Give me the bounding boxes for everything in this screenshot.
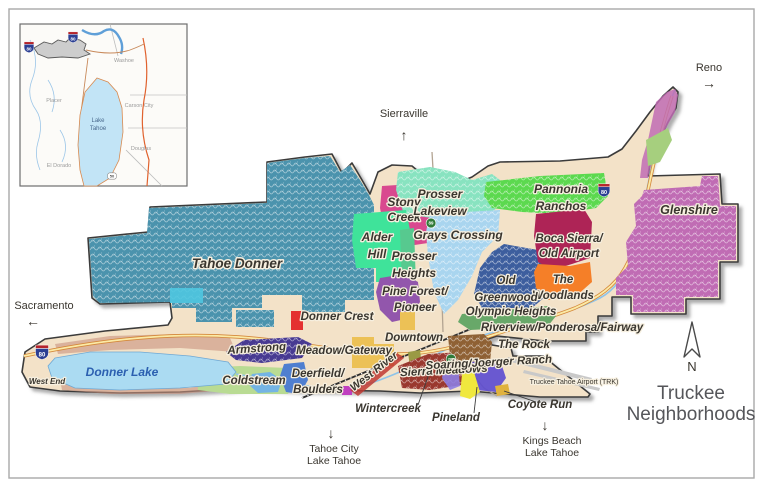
tahoe-donner-meadow: [170, 288, 203, 303]
meadow-gateway-region-c[interactable]: [400, 312, 415, 330]
svg-text:80: 80: [70, 36, 76, 41]
state-route-89-shield: 89: [426, 218, 436, 228]
pineland-label: Pineland: [432, 412, 481, 424]
svg-text:80: 80: [39, 353, 46, 359]
coldstream-label: Coldstream: [222, 375, 285, 387]
downtown-label: Downtown: [385, 332, 443, 344]
coyote-run-label: Coyote Run: [508, 399, 573, 411]
west-end-label: West End: [29, 377, 66, 386]
grays-crossing-label: Grays Crossing: [413, 228, 503, 242]
glenshire-label: Glenshire: [660, 203, 718, 217]
kings-beach-label: Kings BeachLake Tahoe: [523, 435, 582, 459]
map-canvas[interactable]: 808080808926750Tahoe DonnerStonyCreekPro…: [0, 0, 768, 497]
sierraville-arrow: ↑: [401, 127, 408, 143]
meadow-gateway-label: Meadow/Gateway: [296, 345, 392, 357]
wintercreek-label: Wintercreek: [355, 403, 421, 415]
tahoe-city-arrow: ↓: [328, 425, 335, 441]
the-rock-label: The Rock: [498, 339, 550, 351]
airport-label: Truckee Tahoe Airport (TRK): [530, 379, 619, 386]
riverview-ponderosa-fairway-label: Riverview/Ponderosa/Fairway: [481, 322, 644, 334]
reno-label: Reno: [696, 62, 722, 74]
interstate-80-shield: 80: [36, 345, 49, 360]
inset-placer-label: Placer: [46, 98, 62, 104]
north-arrow: [684, 322, 700, 357]
sacramento-label: Sacramento: [14, 300, 73, 312]
donner-crest-label: Donner Crest: [301, 311, 375, 323]
interstate-80-shield: 80: [598, 184, 610, 197]
sierraville-label: Sierraville: [380, 108, 428, 120]
tahoe-donner-block[interactable]: [236, 310, 274, 327]
svg-text:80: 80: [26, 46, 32, 51]
map-title: TruckeeNeighborhoods: [627, 383, 756, 425]
tahoe-donner-label: Tahoe Donner: [192, 256, 283, 271]
olympic-heights-label: Olympic Heights: [466, 306, 557, 318]
interstate-80-shield: 80: [24, 42, 34, 53]
svg-text:50: 50: [110, 174, 115, 179]
svg-text:89: 89: [429, 221, 434, 226]
compass-n-label: N: [687, 359, 696, 374]
inset-douglas-label: Douglas: [131, 146, 151, 152]
inset-el-dorado-label: El Dorado: [47, 163, 71, 169]
kings-beach-arrow: ↓: [542, 417, 549, 433]
inset-washoe-label: Washoe: [114, 58, 134, 64]
coyote-run-region[interactable]: [495, 384, 510, 396]
interstate-80-shield: 80: [68, 32, 78, 43]
truckee-neighborhoods-map: Truckee Neighborhoods 808080808926750Tah…: [0, 0, 768, 497]
tahoe-city-label: Tahoe CityLake Tahoe: [307, 443, 361, 467]
svg-text:80: 80: [601, 190, 607, 196]
reno-arrow: →: [702, 75, 716, 91]
inset-carson-city-label: Carson City: [125, 103, 154, 109]
donner-lake-label: Donner Lake: [86, 365, 159, 379]
sacramento-arrow: ←: [26, 313, 40, 329]
us-route-50-shield: 50: [108, 173, 117, 179]
